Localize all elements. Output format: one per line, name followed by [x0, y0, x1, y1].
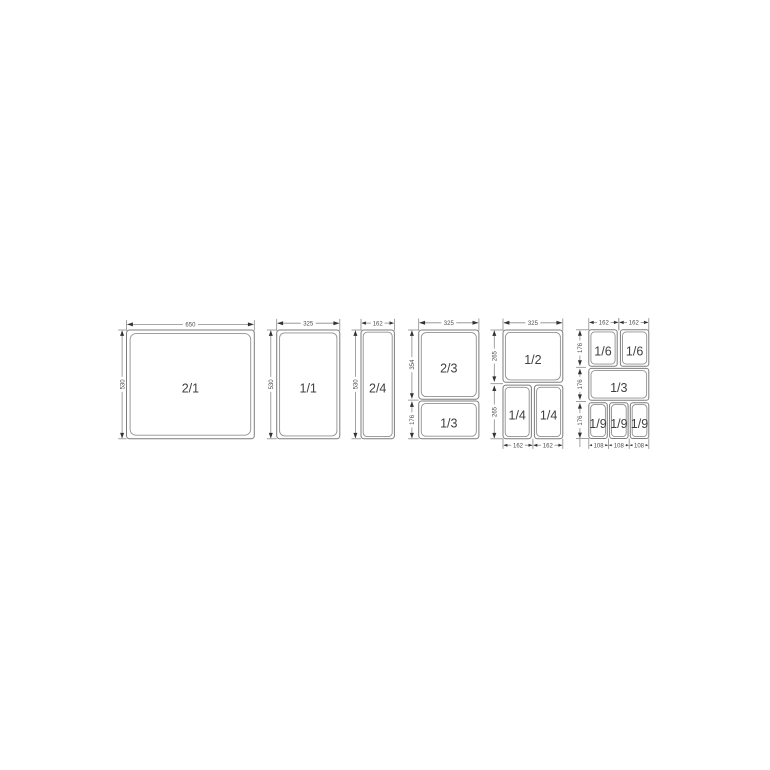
svg-text:1/4: 1/4 [540, 409, 557, 423]
svg-text:1/4: 1/4 [509, 409, 526, 423]
svg-text:325: 325 [528, 321, 539, 327]
svg-text:1/9: 1/9 [589, 417, 606, 431]
svg-text:2/1: 2/1 [182, 382, 199, 396]
svg-text:1/3: 1/3 [610, 381, 627, 395]
svg-text:176: 176 [578, 342, 584, 353]
svg-text:1/3: 1/3 [440, 417, 457, 431]
svg-text:325: 325 [444, 321, 455, 327]
svg-text:265: 265 [493, 350, 499, 361]
svg-text:1/9: 1/9 [610, 417, 627, 431]
svg-text:530: 530 [120, 379, 126, 390]
svg-text:1/1: 1/1 [300, 382, 317, 396]
svg-text:108: 108 [614, 443, 625, 449]
svg-text:530: 530 [354, 379, 360, 390]
svg-text:108: 108 [594, 443, 605, 449]
svg-text:650: 650 [185, 323, 196, 329]
svg-text:176: 176 [578, 415, 584, 426]
svg-text:1/9: 1/9 [631, 417, 648, 431]
svg-text:2/4: 2/4 [369, 382, 386, 396]
svg-text:162: 162 [513, 443, 524, 449]
svg-text:1/6: 1/6 [626, 345, 643, 359]
svg-text:265: 265 [493, 406, 499, 417]
svg-text:162: 162 [543, 443, 554, 449]
svg-text:325: 325 [303, 321, 314, 327]
svg-text:108: 108 [634, 443, 645, 449]
svg-text:2/3: 2/3 [440, 362, 457, 376]
svg-text:162: 162 [599, 321, 610, 327]
svg-text:162: 162 [629, 321, 640, 327]
svg-text:1/2: 1/2 [524, 353, 541, 367]
svg-text:530: 530 [269, 379, 275, 390]
svg-text:354: 354 [410, 359, 416, 370]
svg-text:1/6: 1/6 [594, 345, 611, 359]
svg-text:176: 176 [578, 379, 584, 390]
svg-text:162: 162 [373, 321, 384, 327]
svg-text:176: 176 [410, 414, 416, 425]
